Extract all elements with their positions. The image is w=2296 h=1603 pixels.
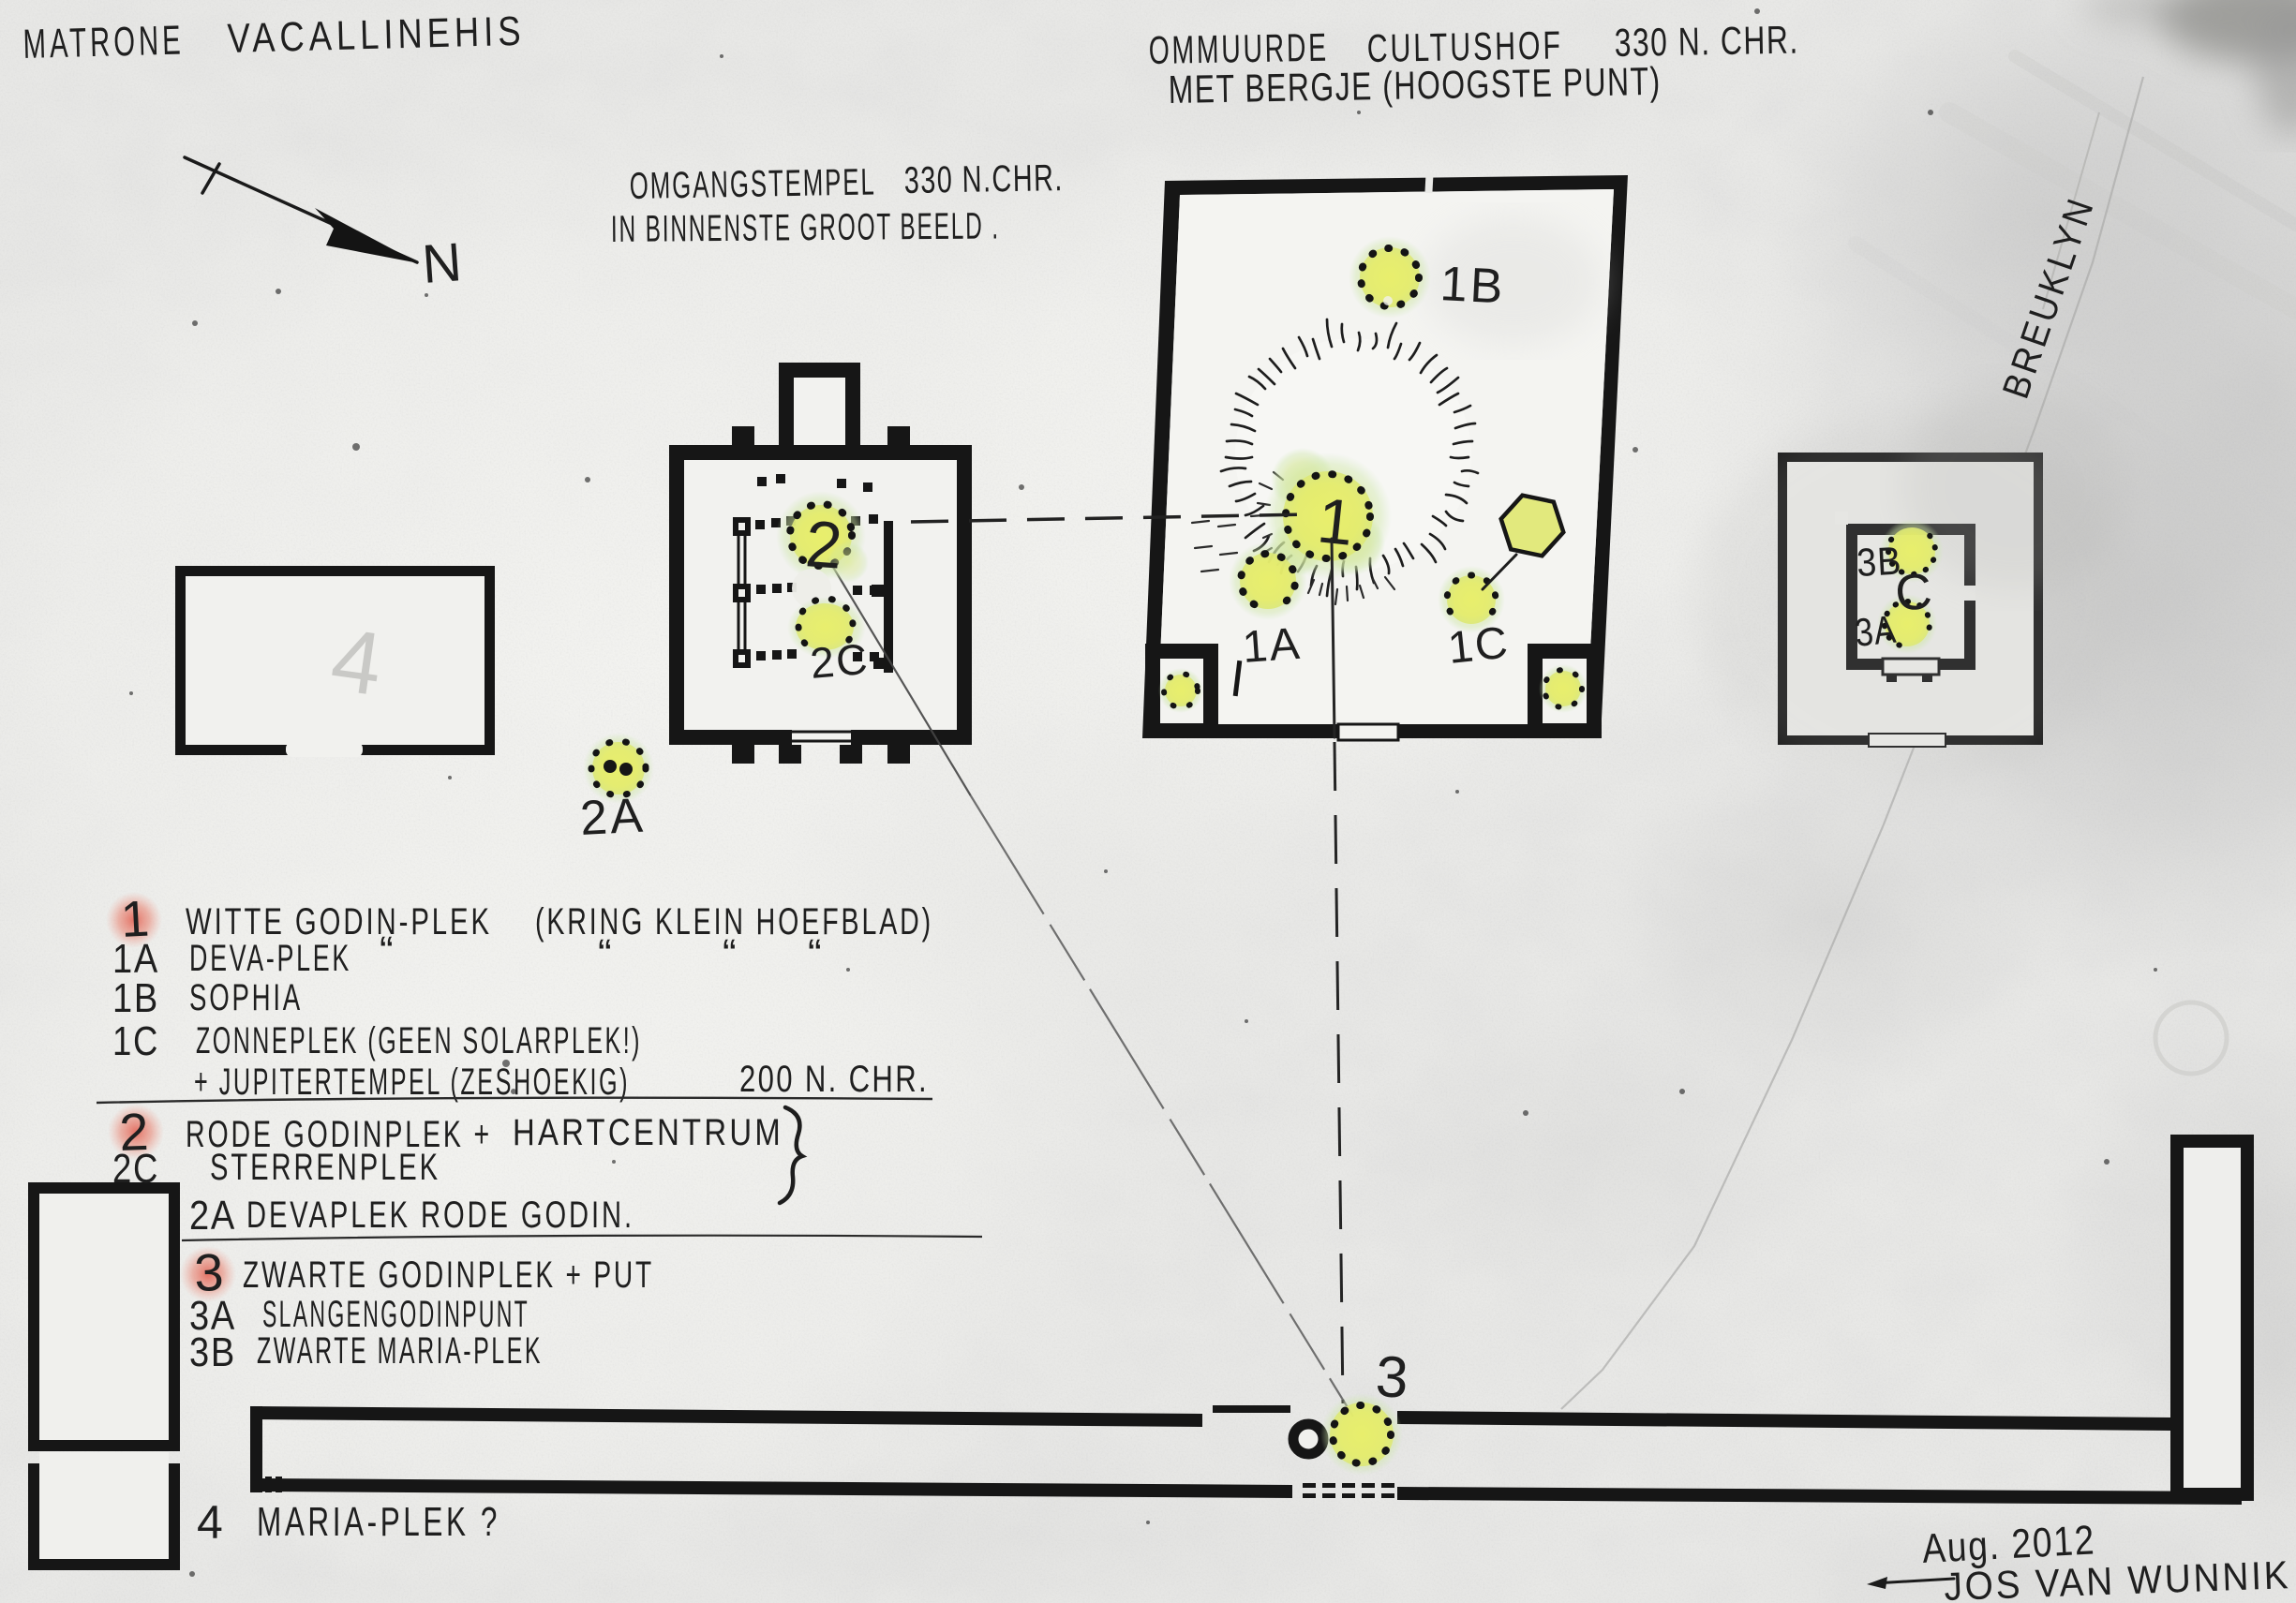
svg-text:3A: 3A: [1853, 607, 1899, 655]
svg-text:2C: 2C: [808, 634, 871, 688]
svg-text:MET BERGJE (HOOGSTE PUNT): MET BERGJE (HOOGSTE PUNT): [1168, 59, 1662, 111]
svg-text:330 N. CHR.: 330 N. CHR.: [1614, 18, 1799, 65]
svg-text:1: 1: [1314, 484, 1357, 559]
svg-text:ZWARTE MARIA-PLEK: ZWARTE MARIA-PLEK: [257, 1330, 543, 1372]
svg-text:IN BINNENSTE GROOT BEELD .: IN BINNENSTE GROOT BEELD .: [611, 205, 1000, 250]
svg-text:C: C: [1893, 563, 1934, 622]
svg-text:N: N: [420, 231, 463, 295]
svg-text:WITTE GODIN-PLEK: WITTE GODIN-PLEK: [186, 901, 492, 943]
svg-text:OMGANGSTEMPEL: OMGANGSTEMPEL: [629, 161, 876, 207]
svg-text:DEVA-PLEK: DEVA-PLEK: [189, 938, 351, 979]
svg-text:2C: 2C: [112, 1146, 159, 1192]
svg-text:1C: 1C: [112, 1018, 159, 1064]
svg-text:+ JUPITERTEMPEL (ZESHOEKIG): + JUPITERTEMPEL (ZESHOEKIG): [194, 1061, 630, 1103]
svg-text:VACALLINEHIS: VACALLINEHIS: [227, 8, 526, 62]
svg-text:ZWARTE GODINPLEK + PUT: ZWARTE GODINPLEK + PUT: [243, 1254, 654, 1296]
svg-text:1B: 1B: [1439, 257, 1507, 315]
svg-text:“: “: [380, 928, 397, 974]
svg-text:STERRENPLEK: STERRENPLEK: [210, 1147, 440, 1188]
svg-text:SLANGENGODINPUNT: SLANGENGODINPUNT: [262, 1294, 529, 1335]
svg-text:3: 3: [1374, 1344, 1409, 1411]
svg-text:2: 2: [803, 507, 844, 583]
svg-text:“: “: [808, 931, 826, 977]
svg-text:4: 4: [197, 1496, 223, 1549]
svg-text:“: “: [598, 931, 616, 977]
svg-text:1B: 1B: [112, 975, 159, 1021]
svg-text:“: “: [723, 931, 740, 977]
svg-text:330 N.CHR.: 330 N.CHR.: [903, 157, 1064, 201]
svg-text:1C: 1C: [1446, 617, 1513, 674]
svg-text:SOPHIA: SOPHIA: [189, 977, 303, 1018]
svg-text:MATRONE: MATRONE: [22, 18, 185, 67]
svg-text:MARIA-PLEK ?: MARIA-PLEK ?: [257, 1499, 500, 1545]
svg-text:HARTCENTRUM: HARTCENTRUM: [513, 1112, 783, 1153]
svg-text:DEVAPLEK RODE GODIN.: DEVAPLEK RODE GODIN.: [246, 1195, 634, 1236]
svg-text:3B: 3B: [189, 1329, 236, 1375]
svg-text:2A: 2A: [189, 1193, 236, 1239]
svg-text:200 N. CHR.: 200 N. CHR.: [739, 1059, 929, 1100]
svg-text:ZONNEPLEK (GEEN SOLARPLEK!): ZONNEPLEK (GEEN SOLARPLEK!): [196, 1020, 642, 1061]
svg-text:1A: 1A: [1241, 619, 1303, 673]
svg-text:2A: 2A: [579, 788, 648, 846]
